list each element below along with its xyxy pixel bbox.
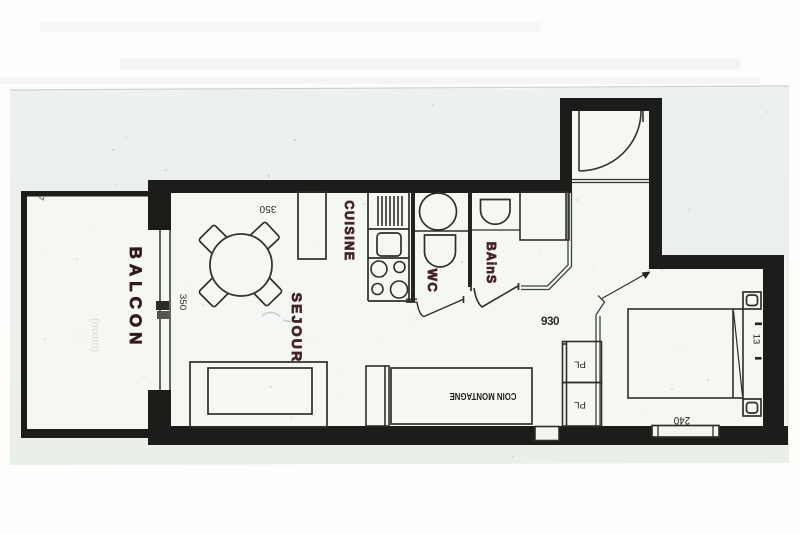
svg-text:BAinS: BAinS — [484, 242, 498, 285]
svg-text:350: 350 — [259, 203, 276, 214]
svg-text:SEJOUR: SEJOUR — [289, 293, 305, 364]
svg-text:BALCON: BALCON — [126, 247, 145, 350]
svg-text:WC: WC — [425, 269, 440, 294]
svg-text:CUISINE: CUISINE — [342, 200, 356, 261]
svg-text:PL: PL — [574, 358, 586, 369]
svg-text:PL: PL — [574, 399, 586, 410]
svg-text:930: 930 — [541, 314, 560, 328]
svg-text:350: 350 — [178, 294, 188, 311]
svg-text:240: 240 — [674, 414, 691, 426]
svg-text:13: 13 — [750, 334, 761, 345]
svg-text:(mxtm): (mxtm) — [89, 318, 101, 352]
svg-text:COIN MONTAGNE: COIN MONTAGNE — [449, 390, 516, 401]
